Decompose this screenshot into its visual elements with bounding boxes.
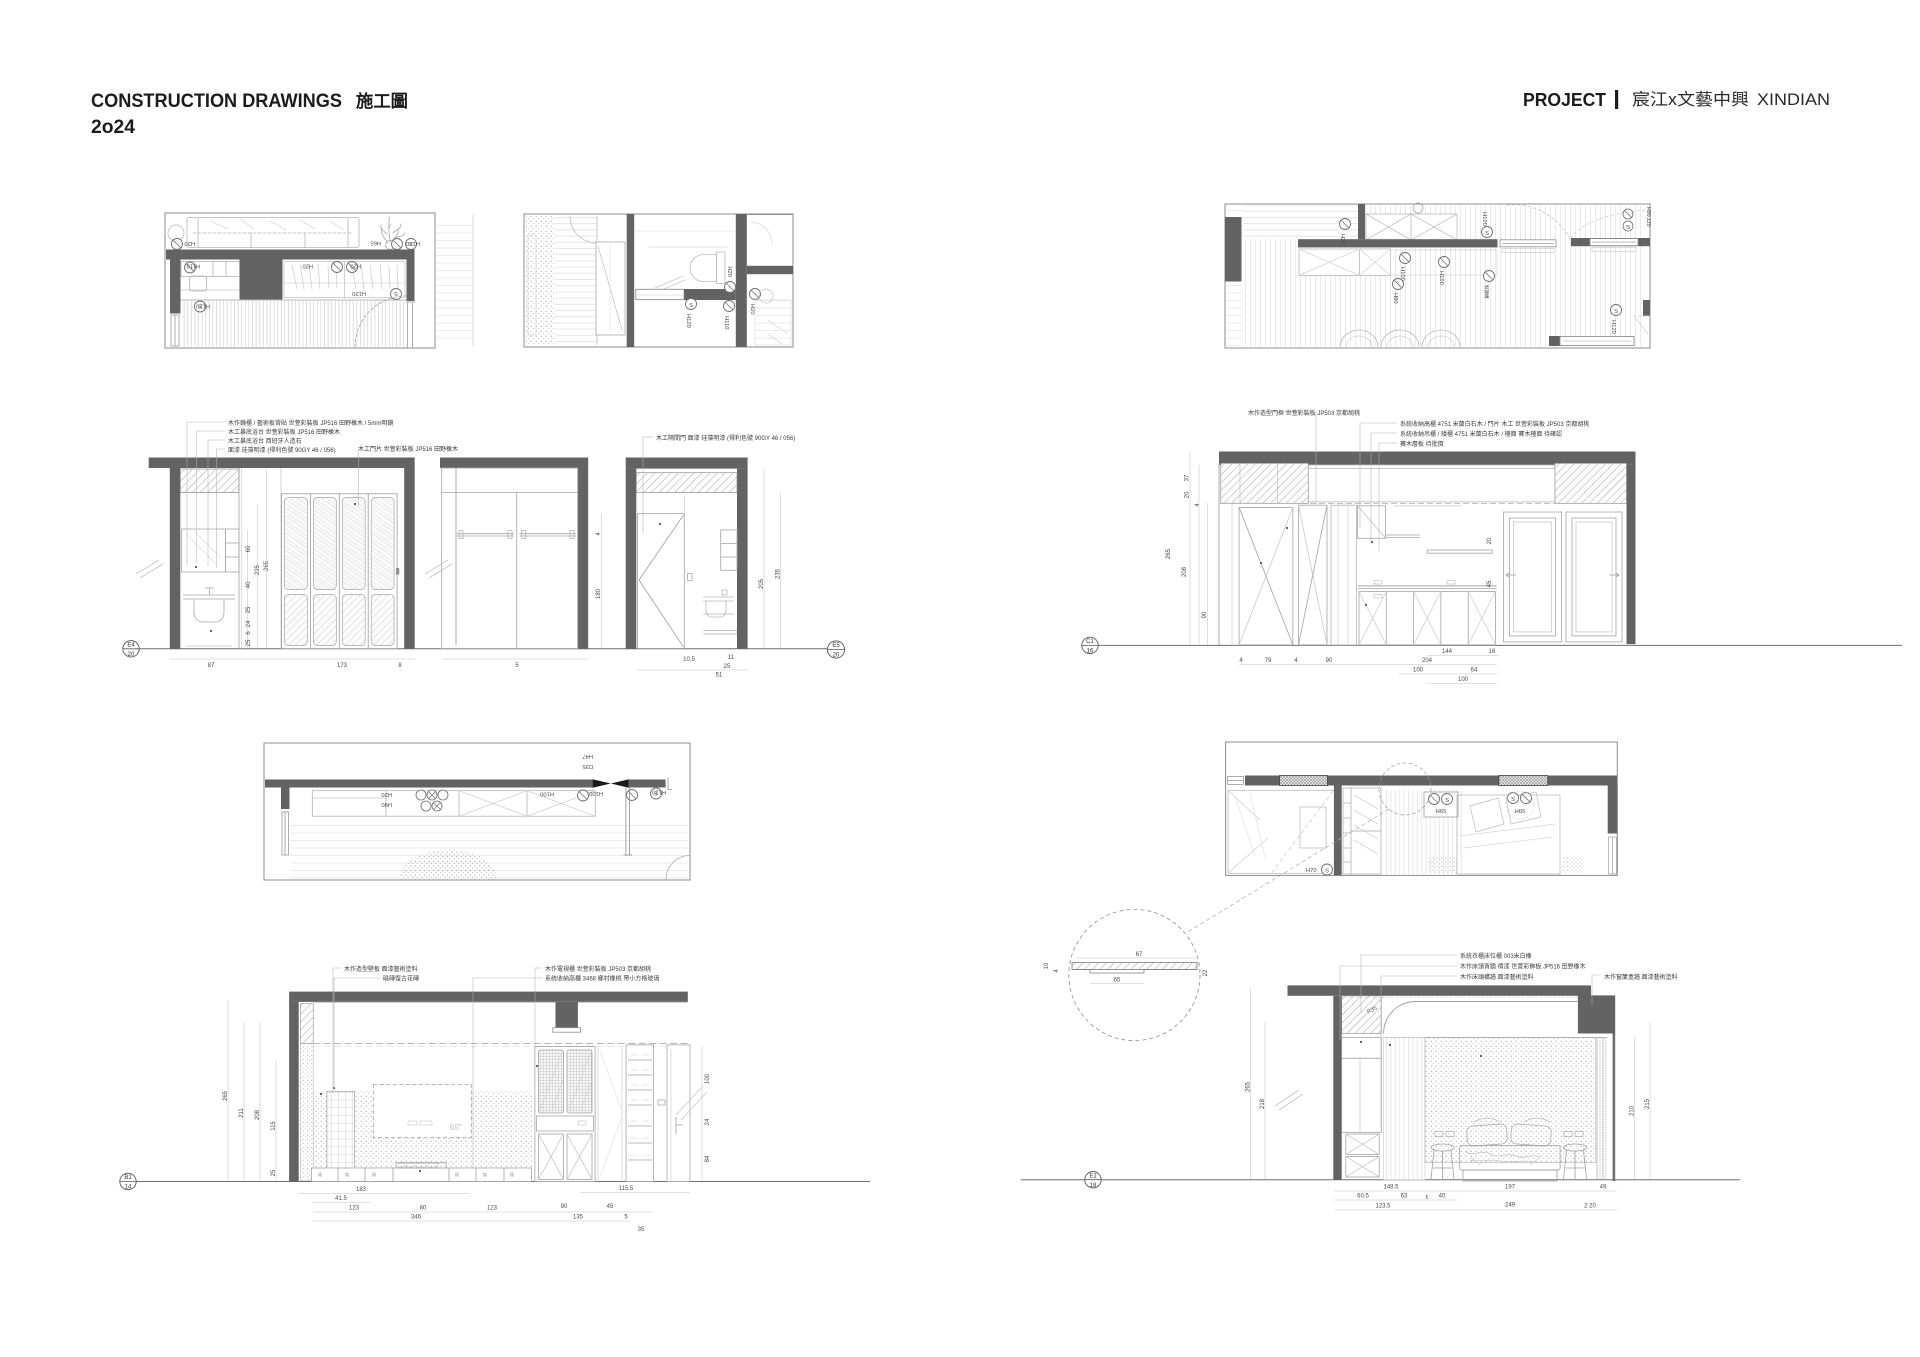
svg-text:67: 67 <box>1136 952 1143 958</box>
svg-text:79: 79 <box>1265 658 1272 664</box>
svg-text:25: 25 <box>246 606 252 613</box>
svg-text:S: S <box>1511 797 1515 803</box>
svg-text:20: 20 <box>1487 537 1493 544</box>
svg-text:14: 14 <box>125 1185 132 1191</box>
svg-text:木作造型門框 世萱彩裝板 JP503 京都胡桃: 木作造型門框 世萱彩裝板 JP503 京都胡桃 <box>1248 409 1360 417</box>
svg-text:265: 265 <box>1246 1081 1252 1092</box>
svg-text:B1: B1 <box>124 1175 132 1181</box>
svg-text:木作造型壁板 面漆藝術塗料: 木作造型壁板 面漆藝術塗料 <box>344 965 418 973</box>
svg-text:插: 插 <box>455 1171 459 1177</box>
svg-text:S: S <box>1445 798 1449 804</box>
svg-text:H120: H120 <box>352 290 366 296</box>
svg-text:80: 80 <box>420 1206 427 1212</box>
svg-text:24: 24 <box>705 1118 711 1125</box>
svg-text:木作鏡櫃 / 藝術板背貼 世萱彩裝板 JP516 田野橡木: 木作鏡櫃 / 藝術板背貼 世萱彩裝板 JP516 田野橡木 / 5mm明鏡 <box>228 419 393 427</box>
svg-text:40: 40 <box>246 581 252 588</box>
svg-text:H20: H20 <box>749 304 755 315</box>
svg-text:25: 25 <box>271 1169 277 1176</box>
svg-text:賽木層板 待批價: 賽木層板 待批價 <box>1400 440 1444 448</box>
svg-text:197: 197 <box>1505 1185 1516 1191</box>
svg-text:11: 11 <box>728 655 735 661</box>
svg-text:265: 265 <box>1166 548 1172 559</box>
svg-text:84: 84 <box>705 1155 711 1162</box>
svg-text:H80: H80 <box>1392 293 1398 304</box>
svg-text:H20: H20 <box>726 266 732 277</box>
svg-text:S: S <box>1325 868 1329 874</box>
svg-text:H110: H110 <box>723 316 729 329</box>
svg-text:10.5: 10.5 <box>683 657 695 663</box>
svg-text:磁磚復古花磚: 磁磚復古花磚 <box>383 975 419 983</box>
svg-text:87: 87 <box>208 663 215 669</box>
svg-text:100: 100 <box>1413 668 1424 674</box>
svg-text:204: 204 <box>1422 658 1433 664</box>
svg-text:24: 24 <box>246 620 252 627</box>
svg-text:49: 49 <box>1600 1185 1607 1191</box>
svg-text:20: 20 <box>1185 491 1191 498</box>
svg-text:215: 215 <box>1645 1098 1651 1109</box>
svg-text:123: 123 <box>487 1206 498 1212</box>
svg-text:木作電視櫃 世萱彩裝板 JP503 京都胡桃: 木作電視櫃 世萱彩裝板 JP503 京都胡桃 <box>545 965 651 973</box>
svg-text:面漆 珪藻明漆 (得利色號 90GY 46 / 056): 面漆 珪藻明漆 (得利色號 90GY 46 / 056) <box>228 446 336 454</box>
svg-text:148.5: 148.5 <box>1383 1185 1399 1191</box>
svg-text:CONSTRUCTION DRAWINGS: CONSTRUCTION DRAWINGS <box>91 91 342 112</box>
svg-text:208: 208 <box>255 1109 261 1120</box>
svg-text:40: 40 <box>1439 1194 1446 1200</box>
svg-text:插: 插 <box>318 1171 322 1177</box>
svg-text:D35: D35 <box>582 763 593 769</box>
svg-text:249: 249 <box>1505 1203 1516 1209</box>
svg-text:60.5: 60.5 <box>1357 1194 1369 1200</box>
svg-text:H120: H120 <box>685 314 691 328</box>
svg-text:H20: H20 <box>350 263 361 269</box>
svg-text:H120: H120 <box>1481 212 1487 226</box>
svg-text:H20: H20 <box>184 240 195 246</box>
svg-text:木作床頭橫牆 面漆藝術塗料: 木作床頭橫牆 面漆藝術塗料 <box>1460 973 1534 981</box>
svg-text:115.5: 115.5 <box>619 1186 634 1192</box>
svg-text:H65: H65 <box>370 240 381 246</box>
svg-text:PROJECT: PROJECT <box>1523 89 1607 110</box>
svg-text:346: 346 <box>411 1215 422 1221</box>
svg-text:25: 25 <box>724 664 731 670</box>
svg-text:H20: H20 <box>302 263 313 269</box>
svg-text:S: S <box>689 303 693 309</box>
svg-text:235: 235 <box>255 564 261 575</box>
svg-text:系統收納高櫃 3468 鄉村橡桃 帶小方格玻璃: 系統收納高櫃 3468 鄉村橡桃 帶小方格玻璃 <box>545 975 659 983</box>
svg-text:H65: H65 <box>1436 809 1447 815</box>
svg-text:插: 插 <box>345 1171 349 1177</box>
svg-text:20: 20 <box>128 652 135 658</box>
svg-text:H20: H20 <box>381 791 392 797</box>
svg-text:插: 插 <box>510 1171 514 1177</box>
svg-text:265: 265 <box>264 560 270 571</box>
svg-text:64: 64 <box>1471 668 1478 674</box>
svg-text:木作床頭背牆 噴漆 世萱彩飾板 JP516 田野橡木: 木作床頭背牆 噴漆 世萱彩飾板 JP516 田野橡木 <box>1460 963 1586 971</box>
svg-text:H20: H20 <box>1339 234 1345 245</box>
svg-text:木工門片 世萱彩裝板 JP516 田野橡木: 木工門片 世萱彩裝板 JP516 田野橡木 <box>358 445 458 453</box>
svg-text:265: 265 <box>223 1090 229 1101</box>
svg-text:S: S <box>1614 309 1618 315</box>
svg-text:C1: C1 <box>1086 639 1094 645</box>
svg-text:H120: H120 <box>196 303 210 309</box>
svg-text:H90,120: H90,120 <box>1645 207 1651 227</box>
svg-text:37: 37 <box>1185 474 1191 481</box>
svg-text:22: 22 <box>1203 969 1209 976</box>
svg-text:123.5: 123.5 <box>1375 1204 1391 1210</box>
svg-text:H70: H70 <box>1306 868 1317 874</box>
svg-text:100: 100 <box>705 1073 711 1084</box>
svg-text:123: 123 <box>349 1206 360 1212</box>
svg-text:H47: H47 <box>582 753 593 759</box>
svg-text:E4: E4 <box>127 643 135 649</box>
svg-text:H120: H120 <box>652 789 666 795</box>
svg-text:宸江x文藝中興: 宸江x文藝中興 <box>1632 90 1749 109</box>
svg-text:63: 63 <box>1401 1194 1408 1200</box>
svg-text:218: 218 <box>1260 1098 1266 1109</box>
svg-text:173: 173 <box>337 663 348 669</box>
svg-text:100: 100 <box>1458 677 1469 683</box>
svg-text:H110: H110 <box>187 263 200 269</box>
svg-text:210: 210 <box>1630 1105 1636 1116</box>
svg-text:41.5: 41.5 <box>335 1196 347 1202</box>
svg-text:90: 90 <box>1326 658 1333 664</box>
svg-text:235: 235 <box>776 568 782 579</box>
svg-text:2 20: 2 20 <box>1584 1204 1596 1210</box>
svg-text:180: 180 <box>596 588 602 599</box>
svg-text:H65: H65 <box>1515 809 1526 815</box>
svg-text:插: 插 <box>483 1171 487 1177</box>
svg-text:45: 45 <box>607 1204 614 1210</box>
svg-text:18: 18 <box>1090 1183 1097 1189</box>
svg-text:木工暴底浴台 世萱彩裝板 JP516 田野橡木: 木工暴底浴台 世萱彩裝板 JP516 田野橡木 <box>228 428 340 436</box>
svg-text:16: 16 <box>1087 649 1094 655</box>
svg-text:2o24: 2o24 <box>91 117 135 138</box>
svg-text:對講機: 對講機 <box>1483 285 1490 299</box>
svg-text:65": 65" <box>450 1123 462 1132</box>
svg-text:65: 65 <box>1114 978 1121 984</box>
svg-text:115: 115 <box>271 1121 277 1131</box>
svg-text:135: 135 <box>573 1215 584 1221</box>
svg-text:施工圖: 施工圖 <box>356 91 408 111</box>
svg-text:51: 51 <box>716 673 723 679</box>
svg-text:E5: E5 <box>832 643 840 649</box>
svg-text:10: 10 <box>1044 962 1050 969</box>
svg-text:90: 90 <box>561 1204 568 1210</box>
svg-text:211: 211 <box>239 1108 245 1118</box>
svg-text:系統收納高櫃 4751 米蘭白石木 / 門片 木工 世萱彩裝: 系統收納高櫃 4751 米蘭白石木 / 門片 木工 世萱彩裝板 JP503 京都… <box>1400 420 1589 428</box>
svg-text:插: 插 <box>372 1171 376 1177</box>
svg-text:木工隔間門 面漆 珪藻明漆 (得利色號 90GY 46 /: 木工隔間門 面漆 珪藻明漆 (得利色號 90GY 46 / 056) <box>656 434 795 442</box>
svg-text:183: 183 <box>356 1187 367 1193</box>
svg-text:H100: H100 <box>589 790 603 796</box>
svg-text:H100: H100 <box>540 791 554 797</box>
svg-text:90: 90 <box>1202 611 1208 618</box>
svg-text:H120: H120 <box>406 240 420 246</box>
svg-text:144: 144 <box>1442 649 1453 655</box>
svg-text:系統收納吊櫃 / 矮櫃 4751 米蘭白石木 / 檯面 賽木: 系統收納吊櫃 / 矮櫃 4751 米蘭白石木 / 檯面 賽木檯面 待確認 <box>1400 430 1562 438</box>
svg-text:H120: H120 <box>1610 320 1616 334</box>
svg-text:系統衣櫃床位櫃 003米白橡: 系統衣櫃床位櫃 003米白橡 <box>1460 952 1532 960</box>
svg-text:S: S <box>394 290 398 296</box>
svg-text:S: S <box>1485 231 1489 237</box>
svg-text:45: 45 <box>1487 580 1493 587</box>
svg-text:60: 60 <box>246 545 252 552</box>
svg-text:35: 35 <box>638 1227 645 1233</box>
svg-text:25: 25 <box>246 639 252 646</box>
svg-text:XINDIAN: XINDIAN <box>1757 91 1830 109</box>
svg-text:木工暴底浴台 西班牙人造石: 木工暴底浴台 西班牙人造石 <box>228 437 302 445</box>
svg-text:16: 16 <box>1489 649 1496 655</box>
svg-text:205: 205 <box>759 578 765 589</box>
svg-text:208: 208 <box>1182 566 1188 577</box>
svg-text:S: S <box>1626 225 1630 231</box>
svg-text:E1: E1 <box>1089 1173 1097 1179</box>
svg-text:20: 20 <box>833 653 840 659</box>
svg-text:H100: H100 <box>1438 271 1444 285</box>
svg-text:木作窗簾盒牆 面漆藝術塗料: 木作窗簾盒牆 面漆藝術塗料 <box>1604 973 1678 981</box>
svg-text:H90: H90 <box>381 801 392 807</box>
